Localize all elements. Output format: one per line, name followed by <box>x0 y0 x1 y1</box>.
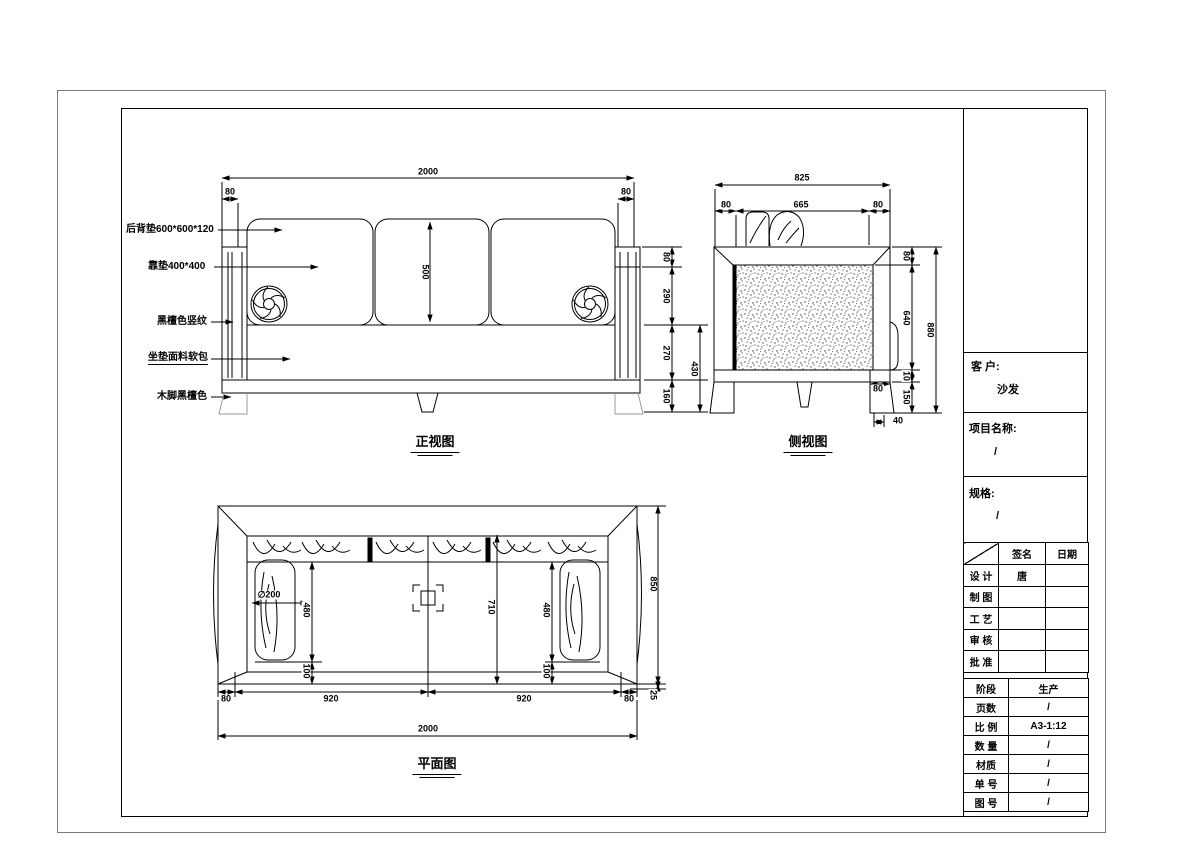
front-label-seat-fabric: 坐垫面料软包 <box>148 353 208 365</box>
plan-dim-bottom-seat-left: 920 <box>322 695 339 704</box>
row-sign <box>999 608 1046 630</box>
signature-row-approve: 批 准 <box>964 651 1089 673</box>
front-label-grain: 黑檀色竖纹 <box>157 317 207 327</box>
info-label: 比 例 <box>964 717 1009 736</box>
plan-dim-depth-inner: 710 <box>487 598 496 615</box>
side-dim-frame-top: 80 <box>902 250 911 262</box>
signature-row-review: 审 核 <box>964 629 1089 651</box>
side-view-caption: 侧视图 <box>783 431 832 453</box>
side-dim-leg: 150 <box>902 388 911 405</box>
side-dim-back-height: 640 <box>902 309 911 326</box>
front-label-pillow: 靠垫400*400 <box>148 262 205 272</box>
row-sign <box>999 629 1046 651</box>
plan-dim-cushion-right: 480 <box>542 601 551 618</box>
plan-dim-cushion-left: 480 <box>302 601 311 618</box>
info-label: 单 号 <box>964 774 1009 793</box>
title-block-divider-1 <box>963 352 1087 353</box>
side-dim-left: 80 <box>720 201 732 210</box>
front-dim-back: 290 <box>662 287 671 304</box>
row-sign <box>999 586 1046 608</box>
signature-col-header: 签名 <box>999 543 1046 565</box>
row-sign <box>999 651 1046 673</box>
client-label: 客 户: <box>971 358 1000 374</box>
info-row-scale: 比 例 A3-1:12 <box>964 717 1089 736</box>
row-label: 工 艺 <box>964 608 999 630</box>
front-dim-seat: 270 <box>662 344 671 361</box>
front-dim-top: 80 <box>662 251 671 263</box>
spec-label: 规格: <box>969 485 995 501</box>
front-dim-arm-left: 80 <box>224 188 236 197</box>
plan-view-linework <box>214 506 667 740</box>
front-dim-arm-right: 80 <box>620 188 632 197</box>
info-value: / <box>1009 755 1089 774</box>
client-value: 沙发 <box>997 381 1019 397</box>
plan-view-caption: 平面图 <box>412 753 461 775</box>
info-value: A3-1:12 <box>1009 717 1089 736</box>
signature-header-row: 签名 日期 <box>964 543 1089 565</box>
project-value: / <box>994 446 997 458</box>
plan-dim-total-depth: 850 <box>649 575 658 592</box>
plan-dim-bottom-seat-right: 920 <box>515 695 532 704</box>
info-row-order-no: 单 号 / <box>964 774 1089 793</box>
plan-dim-gap-right: 100 <box>542 662 551 679</box>
side-dim-total-height: 880 <box>926 321 935 338</box>
info-row-stage: 阶段 生产 <box>964 679 1089 698</box>
row-date <box>1046 565 1089 587</box>
info-row-pages: 页数 / <box>964 698 1089 717</box>
plan-dim-diameter: ∅200 <box>257 591 282 600</box>
info-row-material: 材质 / <box>964 755 1089 774</box>
side-dim-total-width: 825 <box>793 174 810 183</box>
info-value: / <box>1009 736 1089 755</box>
info-value: 生产 <box>1009 679 1089 698</box>
plan-dim-front: 25 <box>649 689 658 701</box>
front-view-linework <box>211 178 708 414</box>
info-label: 页数 <box>964 698 1009 717</box>
info-value: / <box>1009 698 1089 717</box>
front-dim-back-cushion: 500 <box>421 263 430 280</box>
side-dim-gap: 10 <box>902 370 911 382</box>
front-dim-seat-leg: 430 <box>690 360 699 377</box>
project-label: 项目名称: <box>969 420 1017 436</box>
row-date <box>1046 651 1089 673</box>
info-label: 图 号 <box>964 793 1009 812</box>
row-date <box>1046 629 1089 651</box>
cad-sheet: { "front_view": { "caption": "正视图", "par… <box>0 0 1191 842</box>
row-label: 批 准 <box>964 651 999 673</box>
front-view-caption: 正视图 <box>410 431 459 453</box>
date-col-header: 日期 <box>1046 543 1089 565</box>
side-dim-right: 80 <box>872 201 884 210</box>
info-label: 阶段 <box>964 679 1009 698</box>
front-dim-total-width: 2000 <box>417 168 439 177</box>
signature-table: 签名 日期 设 计 唐 制 图 工 艺 审 核 批 准 <box>963 542 1089 673</box>
title-block-divider-3 <box>963 476 1087 477</box>
signature-row-draft: 制 图 <box>964 586 1089 608</box>
info-label: 数 量 <box>964 736 1009 755</box>
front-label-wood-leg: 木脚黑檀色 <box>157 392 207 402</box>
info-value: / <box>1009 774 1089 793</box>
row-label: 设 计 <box>964 565 999 587</box>
row-label: 制 图 <box>964 586 999 608</box>
info-label: 材质 <box>964 755 1009 774</box>
info-row-quantity: 数 量 / <box>964 736 1089 755</box>
plan-dim-bottom-total: 2000 <box>417 725 439 734</box>
front-dim-leg: 160 <box>662 387 671 404</box>
signature-row-craft: 工 艺 <box>964 608 1089 630</box>
signature-diagonal-cell <box>964 543 999 565</box>
side-dim-leg-offset: 40 <box>892 417 904 426</box>
info-table: 阶段 生产 页数 / 比 例 A3-1:12 数 量 / 材质 / 单 号 / … <box>963 678 1089 812</box>
row-label: 审 核 <box>964 629 999 651</box>
info-value: / <box>1009 793 1089 812</box>
plan-dim-gap-left: 100 <box>302 662 311 679</box>
front-pinwheel-right <box>572 286 608 322</box>
row-sign: 唐 <box>999 565 1046 587</box>
plan-dim-bottom-left: 80 <box>220 695 232 704</box>
title-block-divider-2 <box>963 412 1087 413</box>
info-row-drawing-no: 图 号 / <box>964 793 1089 812</box>
side-dim-base: 80 <box>872 385 884 394</box>
front-pinwheel-left <box>251 286 287 322</box>
front-label-back-cushion: 后背垫600*600*120 <box>126 225 214 235</box>
plan-dim-bottom-right: 80 <box>623 695 635 704</box>
row-date <box>1046 586 1089 608</box>
signature-row-design: 设 计 唐 <box>964 565 1089 587</box>
side-dim-inner: 665 <box>792 201 809 210</box>
spec-value: / <box>996 510 999 522</box>
row-date <box>1046 608 1089 630</box>
